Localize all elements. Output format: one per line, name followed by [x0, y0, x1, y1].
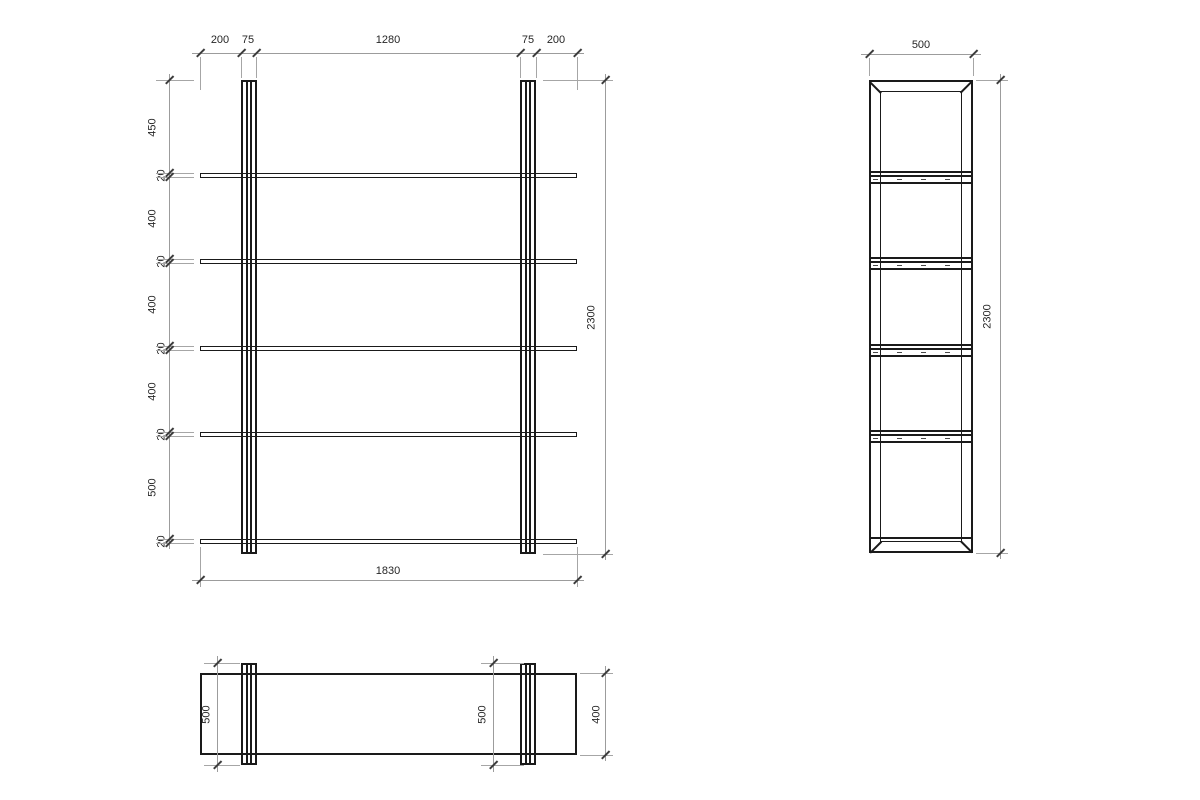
- extension-line: [520, 57, 521, 78]
- extension-line: [536, 57, 537, 78]
- dimension-line: [192, 53, 584, 54]
- extension-line: [204, 663, 240, 664]
- extension-line: [481, 765, 524, 766]
- dimension-line: [605, 666, 606, 761]
- extension-line: [156, 177, 194, 178]
- extension-line: [156, 346, 194, 347]
- dimension-line: [217, 656, 218, 772]
- extension-line: [973, 58, 974, 76]
- dimension-line: [169, 74, 170, 549]
- technical-drawing-canvas: 200 75 1280 75 200 450 20 400 20 400 20 …: [0, 0, 1200, 800]
- extension-line: [869, 58, 870, 76]
- extension-line: [156, 539, 194, 540]
- extension-line: [577, 57, 578, 90]
- extension-line: [256, 57, 257, 78]
- extension-line: [976, 80, 1008, 81]
- extension-line: [200, 57, 201, 90]
- extension-line: [156, 350, 194, 351]
- extension-line: [156, 173, 194, 174]
- dimension-line: [1000, 74, 1001, 559]
- extension-line: [156, 543, 194, 544]
- extension-line: [156, 80, 194, 81]
- dimension-graphics-layer: [0, 0, 1200, 800]
- extension-line: [156, 259, 194, 260]
- dimension-line: [192, 580, 584, 581]
- extension-line: [156, 436, 194, 437]
- extension-line: [580, 755, 613, 756]
- extension-line: [481, 663, 524, 664]
- extension-line: [204, 765, 240, 766]
- extension-line: [156, 432, 194, 433]
- extension-line: [976, 553, 1008, 554]
- dimension-line: [861, 54, 981, 55]
- extension-line: [156, 263, 194, 264]
- dimension-line: [493, 656, 494, 772]
- extension-line: [580, 673, 613, 674]
- extension-line: [241, 57, 242, 78]
- dimension-line: [605, 74, 606, 560]
